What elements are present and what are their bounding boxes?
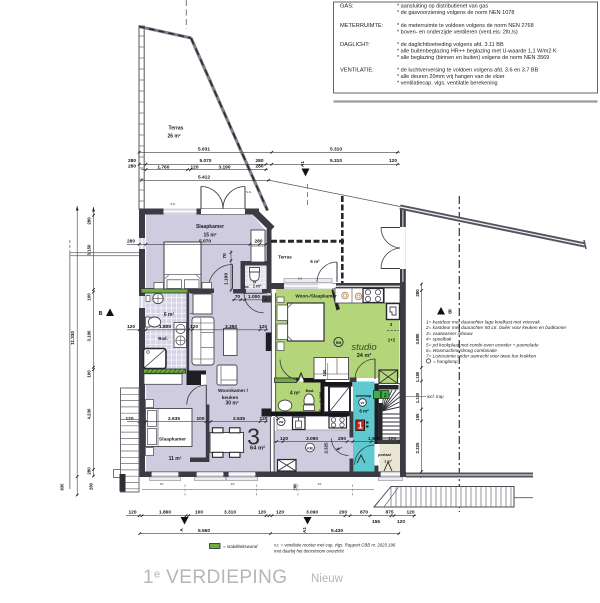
svg-text:1.100: 1.100 (224, 273, 230, 285)
svg-text:120: 120 (125, 416, 133, 422)
svg-text:30 m²: 30 m² (225, 401, 238, 407)
svg-text:= hanglamp: = hanglamp (433, 359, 458, 364)
svg-text:120: 120 (190, 324, 198, 330)
svg-text:1.300: 1.300 (319, 391, 324, 403)
svg-text:120: 120 (128, 510, 136, 516)
svg-text:64 m²: 64 m² (250, 445, 265, 452)
svg-text:280: 280 (128, 158, 136, 164)
svg-text:* boven- en onderzijde ventile: * boven- en onderzijde ventileren (vent.… (397, 29, 518, 35)
svg-text:120: 120 (190, 164, 198, 170)
svg-text:* de gasvoorziening volgens de: * de gasvoorziening volgens de norm NEN … (397, 10, 514, 16)
svg-text:5.412: 5.412 (198, 175, 210, 181)
svg-text:Woon-/Slaapkamer: Woon-/Slaapkamer (295, 294, 336, 299)
svg-text:120: 120 (259, 416, 267, 422)
svg-text:830: 830 (60, 483, 65, 491)
svg-text:portaal: portaal (378, 453, 391, 457)
svg-text:v.r.: v.r. (231, 482, 236, 486)
svg-text:studio: studio (351, 342, 376, 353)
svg-text:RM: RM (336, 341, 342, 345)
svg-text:5.310: 5.310 (330, 158, 342, 164)
svg-text:GAS:: GAS: (340, 4, 354, 10)
svg-text:70: 70 (235, 294, 241, 300)
svg-text:3.150: 3.150 (87, 244, 92, 256)
svg-text:DAGLICHT:: DAGLICHT: (340, 42, 370, 48)
svg-text:120: 120 (259, 324, 267, 330)
svg-text:5.560: 5.560 (198, 528, 210, 534)
svg-text:v.r.: v.r. (318, 482, 323, 486)
svg-text:5.070: 5.070 (199, 158, 211, 164)
svg-text:120: 120 (127, 324, 135, 330)
svg-text:VENTILATIE:: VENTILATIE: (340, 68, 374, 74)
svg-text:120: 120 (397, 519, 405, 525)
svg-text:1.800: 1.800 (159, 324, 171, 330)
svg-text:* alle buitenbeglazing HR++ be: * alle buitenbeglazing HR++ beglazing me… (397, 48, 557, 54)
svg-text:3.880: 3.880 (415, 333, 420, 345)
svg-text:120: 120 (276, 510, 284, 516)
svg-text:155: 155 (372, 519, 380, 525)
svg-text:3.350: 3.350 (225, 324, 237, 330)
svg-text:* de daglichttoetreding volgen: * de daglichttoetreding volgens afd. 3.1… (397, 42, 504, 48)
svg-text:* alle beglazing (binnen en bu: * alle beglazing (binnen en buiten) volg… (397, 55, 549, 61)
svg-text:1.760: 1.760 (157, 164, 169, 170)
svg-text:100: 100 (87, 293, 92, 301)
svg-text:1.180: 1.180 (415, 371, 420, 382)
svg-text:4.230: 4.230 (87, 408, 92, 420)
svg-text:= stabiliteitswand: = stabiliteitswand (223, 544, 258, 549)
svg-text:1: 1 (358, 421, 363, 431)
svg-text:875: 875 (385, 510, 393, 516)
svg-text:Bad.: Bad. (306, 388, 315, 393)
svg-text:1.900: 1.900 (368, 436, 380, 442)
svg-text:280: 280 (255, 158, 263, 164)
svg-text:B: B (448, 310, 452, 316)
svg-text:11.330: 11.330 (70, 331, 75, 345)
svg-text:1 m²: 1 m² (253, 284, 262, 289)
svg-text:v.r. = ventilatie rooster met: v.r. = ventilatie rooster met cap. vlgs.… (274, 543, 396, 548)
svg-text:vw: vw (279, 420, 284, 424)
svg-text:200: 200 (339, 510, 347, 516)
svg-text:5.070: 5.070 (199, 239, 211, 245)
svg-text:6 m²: 6 m² (164, 312, 175, 318)
svg-text:4 m²: 4 m² (290, 391, 301, 397)
svg-text:4= spoelbak: 4= spoelbak (426, 337, 452, 342)
svg-text:* ventilatiecap. vlgs. ventila: * ventilatiecap. vlgs. ventilatie bereke… (397, 80, 498, 86)
svg-text:Bad.: Bad. (158, 336, 168, 341)
svg-text:280: 280 (87, 467, 92, 475)
svg-text:6 m²: 6 m² (359, 409, 369, 414)
svg-text:A1: A1 (300, 161, 305, 167)
svg-text:120: 120 (280, 436, 288, 442)
svg-text:870: 870 (360, 510, 368, 516)
svg-text:met daarbij het doorstroom ove: met daarbij het doorstroom overzicht (274, 548, 345, 553)
svg-text:1.000: 1.000 (248, 294, 260, 300)
svg-text:280: 280 (127, 239, 135, 245)
svg-text:280: 280 (87, 217, 92, 225)
svg-text:2.535: 2.535 (233, 416, 245, 422)
svg-text:* alle deuren 20mm vrij hangen: * alle deuren 20mm vrij hangen van de vl… (397, 74, 505, 80)
svg-text:ve: ve (361, 401, 365, 405)
svg-text:2.325: 2.325 (324, 442, 329, 454)
svg-text:B: B (99, 311, 103, 317)
svg-text:15 m²: 15 m² (203, 233, 216, 239)
svg-text:70: 70 (222, 253, 228, 259)
svg-text:incl. trap: incl. trap (427, 394, 444, 399)
svg-text:3.190: 3.190 (87, 330, 92, 342)
svg-text:11 m²: 11 m² (169, 456, 182, 462)
svg-text:1= kastdeur met daarachter lag: 1= kastdeur met daarachter lage koelkast… (426, 320, 540, 325)
svg-text:1.860: 1.860 (159, 510, 171, 516)
svg-text:5.631: 5.631 (198, 146, 210, 152)
svg-text:1+2: 1+2 (388, 338, 396, 343)
svg-text:A1: A1 (302, 527, 307, 533)
svg-text:280: 280 (415, 289, 420, 297)
svg-text:120: 120 (389, 158, 397, 164)
svg-text:1 m²: 1 m² (384, 460, 393, 464)
svg-text:v.r.: v.r. (160, 482, 165, 486)
svg-text:Slaapkamer: Slaapkamer (159, 437, 186, 443)
svg-text:2.635: 2.635 (168, 416, 180, 422)
svg-text:Slaapkamer: Slaapkamer (196, 224, 224, 230)
svg-text:v.c.: v.c. (170, 202, 175, 206)
svg-text:100: 100 (195, 510, 203, 516)
svg-text:155: 155 (415, 413, 420, 421)
svg-text:120: 120 (258, 510, 266, 516)
svg-text:* de luchtverversing te voldoe: * de luchtverversing te voldoen volgens … (397, 68, 539, 74)
svg-text:6= Wasmachine/droog combinatie: 6= Wasmachine/droog combinatie (426, 348, 497, 353)
svg-text:100: 100 (322, 369, 327, 377)
svg-text:3.090: 3.090 (306, 510, 318, 516)
svg-text:v.c: v.c (298, 277, 303, 281)
svg-text:155: 155 (319, 408, 324, 416)
svg-text:200: 200 (338, 436, 346, 442)
svg-text:1.100: 1.100 (415, 392, 420, 403)
svg-text:5.430: 5.430 (331, 528, 343, 534)
svg-text:1e VERDIEPING: 1e VERDIEPING (143, 567, 287, 588)
svg-text:v.c.: v.c. (246, 190, 251, 194)
svg-text:3.090: 3.090 (306, 436, 318, 442)
svg-text:Terras: Terras (169, 126, 184, 132)
svg-text:Woonkamer /: Woonkamer / (218, 388, 249, 394)
svg-text:280: 280 (255, 163, 263, 169)
svg-text:Nieuw: Nieuw (311, 573, 344, 585)
svg-text:5= pd kookplaat met combi-oven: 5= pd kookplaat met combi-oven eronder +… (426, 342, 539, 347)
svg-text:100: 100 (87, 370, 92, 378)
svg-text:3.190: 3.190 (218, 164, 230, 170)
svg-text:5.310: 5.310 (330, 146, 342, 152)
svg-text:280: 280 (89, 482, 94, 490)
svg-text:280: 280 (254, 239, 262, 245)
svg-text:KM: KM (307, 446, 312, 450)
svg-text:* aansluiting op distributiene: * aansluiting op distributienet van gas (397, 4, 488, 10)
svg-text:3.310: 3.310 (224, 510, 236, 516)
svg-text:5 m²: 5 m² (310, 259, 320, 264)
svg-text:2.325: 2.325 (415, 442, 420, 454)
svg-text:24 m²: 24 m² (357, 352, 372, 359)
svg-text:METERRUIMTE:: METERRUIMTE: (340, 23, 384, 29)
svg-text:2: 2 (384, 393, 387, 399)
svg-text:100: 100 (196, 416, 204, 422)
svg-text:280: 280 (128, 163, 136, 169)
svg-text:3= vaatwasser inbouw: 3= vaatwasser inbouw (426, 331, 473, 336)
svg-text:120: 120 (388, 436, 396, 442)
svg-text:7= Lozeruimte onder aanrecht v: 7= Lozeruimte onder aanrecht voor twee b… (426, 354, 536, 359)
svg-text:wc: wc (243, 285, 249, 289)
svg-text:120: 120 (406, 510, 414, 516)
svg-text:* de meterruimte te voldoen vo: * de meterruimte te voldoen volgens de n… (397, 23, 534, 29)
svg-text:Terras: Terras (278, 255, 292, 260)
svg-text:overloop: overloop (356, 394, 372, 398)
svg-text:2= kastdeur met daarachter 50: 2= kastdeur met daarachter 50 Ltr. boile… (425, 325, 567, 330)
svg-text:26 m²: 26 m² (167, 134, 180, 140)
